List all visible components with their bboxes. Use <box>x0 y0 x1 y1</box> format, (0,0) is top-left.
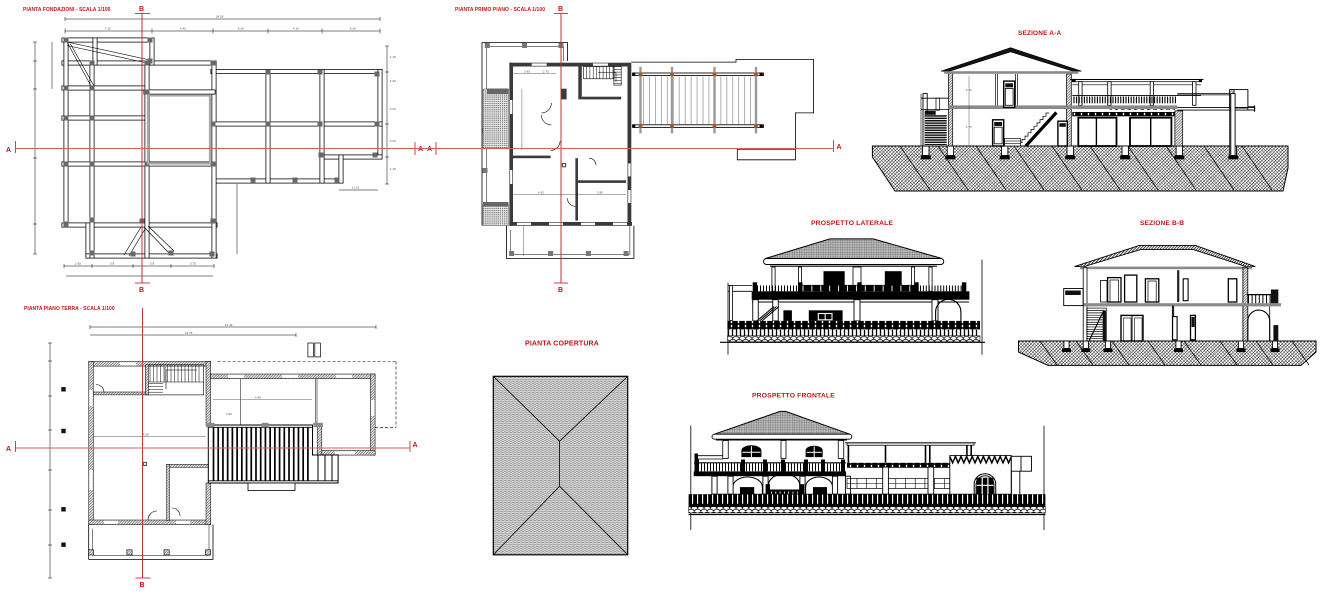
svg-text:1.40: 1.40 <box>390 55 396 59</box>
svg-text:4.00: 4.00 <box>390 79 396 83</box>
svg-text:4.10: 4.10 <box>238 27 244 31</box>
svg-text:12.75: 12.75 <box>185 331 193 335</box>
svg-text:2.70: 2.70 <box>543 69 549 73</box>
svg-text:3.8: 3.8 <box>150 262 155 266</box>
svg-text:2.70: 2.70 <box>966 125 972 129</box>
svg-text:1.40: 1.40 <box>390 167 396 171</box>
svg-text:7.10: 7.10 <box>105 27 111 31</box>
svg-text:3.60: 3.60 <box>524 69 530 73</box>
svg-text:PROSPETTO LATERALE: PROSPETTO LATERALE <box>811 220 893 227</box>
svg-text:4.05: 4.05 <box>226 412 232 416</box>
svg-text:3.8: 3.8 <box>110 262 115 266</box>
svg-text:4.45: 4.45 <box>180 27 186 31</box>
svg-text:PIANTA PRIMO PIANO - SCALA 1/1: PIANTA PRIMO PIANO - SCALA 1/100 <box>455 7 545 13</box>
svg-text:SEZIONE B-B: SEZIONE B-B <box>1140 220 1184 227</box>
svg-text:B: B <box>139 287 144 294</box>
svg-text:24.05: 24.05 <box>216 15 224 19</box>
svg-text:3.75: 3.75 <box>190 262 196 266</box>
svg-text:11.10: 11.10 <box>352 186 360 190</box>
svg-text:4.05: 4.05 <box>538 190 544 194</box>
svg-text:2.70: 2.70 <box>966 88 972 92</box>
svg-text:B: B <box>140 582 145 589</box>
svg-text:A: A <box>6 446 11 453</box>
svg-text:A: A <box>837 144 842 151</box>
svg-text:A: A <box>413 442 418 449</box>
svg-text:4.40: 4.40 <box>255 395 261 399</box>
svg-text:4.20: 4.20 <box>143 432 149 436</box>
svg-text:B: B <box>558 287 563 294</box>
svg-text:A: A <box>6 147 11 154</box>
svg-text:4.00: 4.00 <box>390 107 396 111</box>
svg-text:4.10: 4.10 <box>293 27 299 31</box>
svg-text:B: B <box>139 6 144 13</box>
svg-text:A: A <box>418 146 423 153</box>
svg-text:4.00: 4.00 <box>390 139 396 143</box>
svg-text:16.40: 16.40 <box>225 323 233 327</box>
svg-text:B: B <box>558 6 563 13</box>
svg-text:PROSPETTO FRONTALE: PROSPETTO FRONTALE <box>752 393 835 400</box>
svg-text:2.65: 2.65 <box>75 262 81 266</box>
svg-text:SEZIONE A-A: SEZIONE A-A <box>1018 30 1061 37</box>
svg-text:PIANTA COPERTURA: PIANTA COPERTURA <box>525 341 599 348</box>
svg-text:A: A <box>427 146 432 153</box>
svg-text:4.10: 4.10 <box>350 27 356 31</box>
svg-text:3.85: 3.85 <box>597 190 603 194</box>
svg-text:PIANTA PIANO TERRA - SCALA 1/: PIANTA PIANO TERRA - SCALA 1/100 <box>24 306 115 312</box>
svg-text:PIANTA FONDAZIONI - SCALA 1/1: PIANTA FONDAZIONI - SCALA 1/100 <box>23 7 111 13</box>
